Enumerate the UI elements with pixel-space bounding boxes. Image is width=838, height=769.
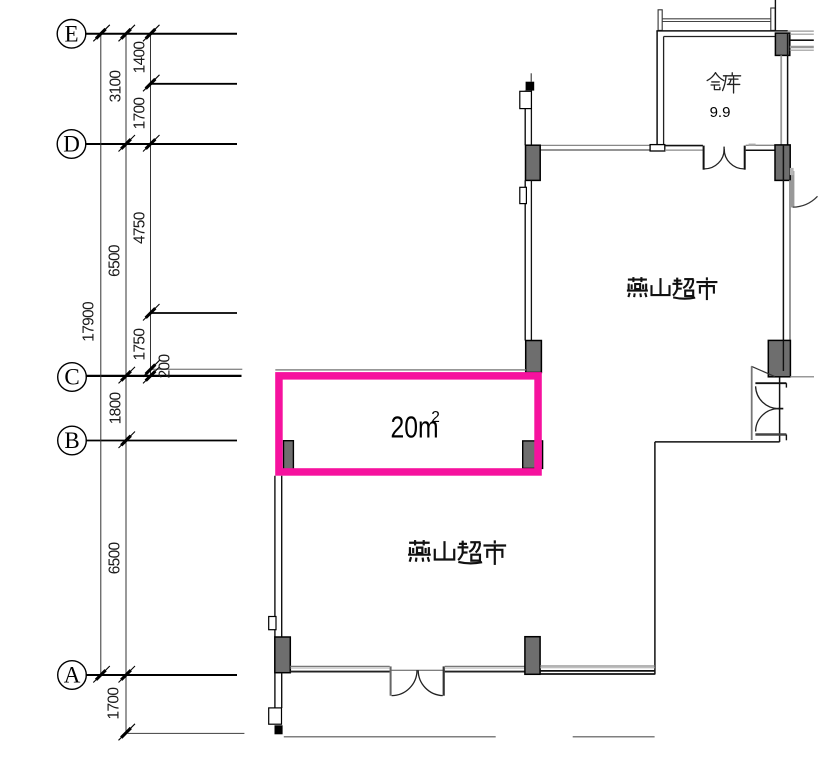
svg-text:D: D [63, 132, 80, 157]
svg-text:C: C [64, 365, 79, 390]
svg-text:9.9: 9.9 [710, 104, 731, 121]
svg-text:17900: 17900 [81, 301, 98, 342]
svg-text:1700: 1700 [106, 687, 123, 720]
svg-text:B: B [64, 428, 79, 453]
svg-text:A: A [64, 663, 81, 688]
svg-text:3100: 3100 [108, 70, 125, 103]
svg-text:6500: 6500 [107, 244, 124, 277]
svg-text:E: E [64, 22, 78, 47]
svg-text:1700: 1700 [132, 97, 149, 130]
svg-text:1800: 1800 [108, 391, 125, 424]
svg-text:4750: 4750 [132, 211, 149, 244]
svg-text:2: 2 [431, 409, 440, 426]
svg-text:1400: 1400 [132, 41, 149, 74]
svg-text:1750: 1750 [132, 328, 149, 361]
svg-text:6500: 6500 [107, 541, 124, 574]
svg-text:200: 200 [157, 354, 174, 379]
